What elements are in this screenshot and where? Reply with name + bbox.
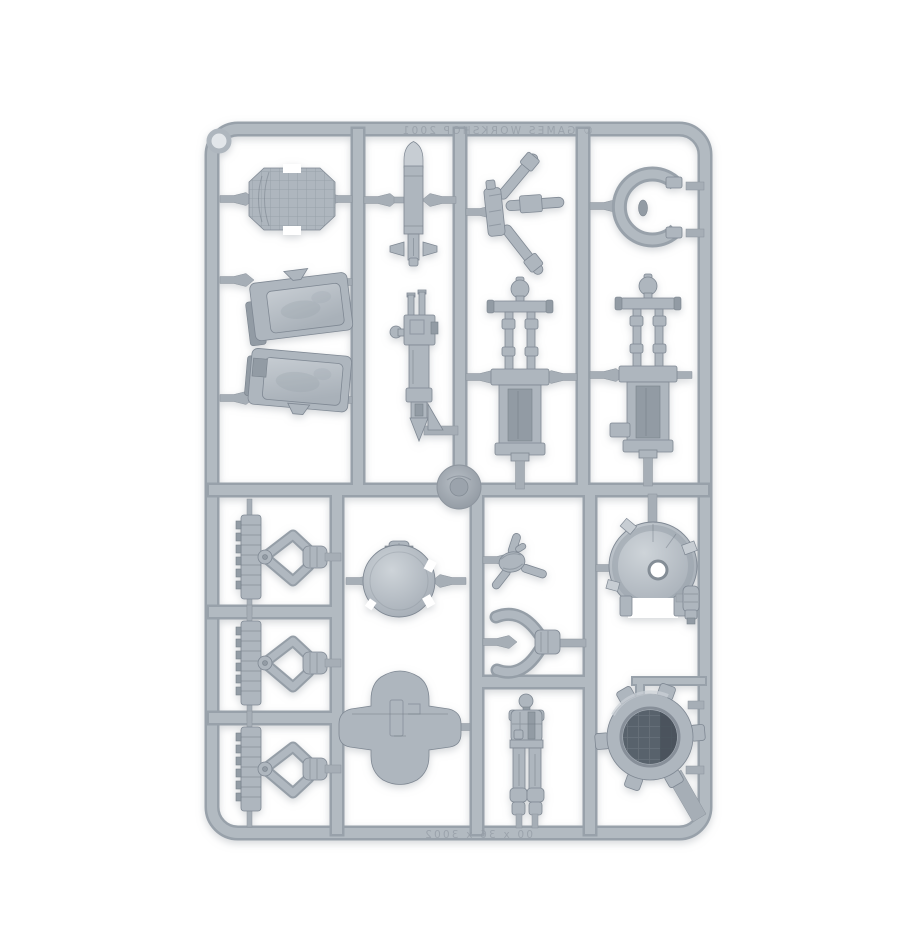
- part-lugged-ring: [595, 683, 706, 792]
- corner-locator-ring: [209, 131, 229, 151]
- photo-stage: © GAMES WORKSHOP 2001 00 x 36 x 3002: [0, 0, 918, 948]
- sprue-photo: © GAMES WORKSHOP 2001 00 x 36 x 3002: [0, 0, 918, 948]
- embossed-copyright: © GAMES WORKSHOP 2001: [400, 125, 593, 137]
- part-tread-plate: [249, 164, 335, 235]
- part-large-dome: [606, 494, 699, 624]
- part-hatch-panel-lower: [243, 348, 352, 419]
- part-claw-arm-3: [236, 711, 341, 827]
- part-trooper-body: [509, 694, 544, 828]
- part-gun: [390, 290, 443, 441]
- embossed-code: 00 x 36 x 3002: [423, 829, 533, 841]
- part-tripod-arms: [484, 150, 565, 278]
- part-claw-arm-1: [236, 499, 341, 615]
- part-claw-arm-2: [236, 605, 341, 721]
- sprue-frame: © GAMES WORKSHOP 2001 00 x 36 x 3002: [209, 125, 706, 841]
- part-round-hatch: [363, 541, 437, 617]
- embossed-text-top: © GAMES WORKSHOP 2001: [400, 125, 593, 137]
- part-injection-hub: [437, 465, 481, 509]
- part-c-ring: [619, 174, 682, 240]
- part-shield-plate: [339, 671, 461, 785]
- part-strut-right: [610, 274, 681, 486]
- part-hatch-panel-upper: [242, 264, 354, 346]
- embossed-text-bottom: 00 x 36 x 3002: [423, 829, 533, 841]
- part-strut-left: [487, 277, 553, 489]
